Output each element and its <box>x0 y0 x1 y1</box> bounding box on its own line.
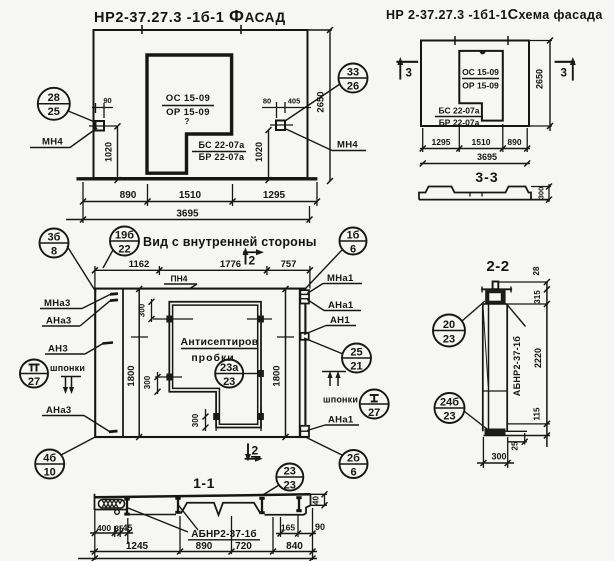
svg-text:2б: 2б <box>347 453 360 465</box>
svg-text:23: 23 <box>284 466 296 478</box>
svg-text:1020: 1020 <box>254 142 264 162</box>
svg-text:25: 25 <box>511 441 520 450</box>
svg-text:АНа3: АНа3 <box>46 316 72 327</box>
svg-text:МНа1: МНа1 <box>327 273 354 284</box>
svg-text:10: 10 <box>44 467 56 479</box>
svg-text:ОС 15-09: ОС 15-09 <box>462 67 499 77</box>
svg-text:840: 840 <box>286 541 303 552</box>
svg-text:6: 6 <box>350 467 356 479</box>
svg-text:БС 22-07а: БС 22-07а <box>439 106 480 116</box>
svg-text:1245: 1245 <box>126 541 149 552</box>
svg-text:1162: 1162 <box>129 259 150 270</box>
svg-text:28: 28 <box>532 266 541 275</box>
svg-text:23: 23 <box>443 334 455 346</box>
svg-text:890: 890 <box>196 541 213 552</box>
svg-text:300: 300 <box>191 413 200 427</box>
svg-text:21: 21 <box>350 361 362 373</box>
svg-text:19б: 19б <box>115 230 134 242</box>
svg-text:757: 757 <box>281 259 297 270</box>
svg-text:28: 28 <box>48 92 60 104</box>
svg-text:300: 300 <box>143 375 152 389</box>
svg-text:20: 20 <box>443 319 455 331</box>
svg-text:890: 890 <box>120 190 137 201</box>
svg-text:1776: 1776 <box>220 259 241 270</box>
svg-text:АН3: АН3 <box>48 344 68 355</box>
svg-text:25: 25 <box>48 106 60 118</box>
svg-text:6: 6 <box>350 244 356 256</box>
svg-text:3695: 3695 <box>176 209 199 220</box>
svg-text:АБНР2-37-1б: АБНР2-37-1б <box>512 336 522 396</box>
svg-text:шпонки: шпонки <box>50 363 85 373</box>
svg-text:45: 45 <box>123 523 133 533</box>
svg-text:2220: 2220 <box>533 348 543 368</box>
svg-text:МН4: МН4 <box>337 140 358 151</box>
svg-text:АН1: АН1 <box>330 315 350 326</box>
svg-text:3695: 3695 <box>477 152 497 162</box>
svg-text:22: 22 <box>118 244 130 256</box>
svg-text:3б: 3б <box>48 232 61 244</box>
svg-text:115: 115 <box>533 407 542 420</box>
svg-text:300: 300 <box>491 452 506 462</box>
svg-text:Антисептиров: Антисептиров <box>180 336 258 348</box>
svg-text:33: 33 <box>347 67 359 79</box>
svg-text:23а: 23а <box>220 362 239 374</box>
svg-text:300: 300 <box>537 187 546 200</box>
svg-text:90: 90 <box>315 522 325 532</box>
svg-text:1295: 1295 <box>263 190 286 201</box>
svg-text:МНа3: МНа3 <box>44 298 71 309</box>
svg-text:23: 23 <box>284 480 296 492</box>
svg-text:?: ? <box>185 117 190 126</box>
svg-text:шпонки: шпонки <box>323 395 358 405</box>
svg-text:165: 165 <box>281 523 295 533</box>
svg-text:27: 27 <box>28 376 40 388</box>
svg-text:890: 890 <box>507 137 521 147</box>
svg-text:400: 400 <box>97 523 111 533</box>
svg-text:2-2: 2-2 <box>486 258 509 275</box>
svg-text:720: 720 <box>235 541 252 552</box>
svg-text:АНа1: АНа1 <box>328 300 354 311</box>
svg-text:1б: 1б <box>347 230 360 242</box>
svg-text:Вид с внутренней стороны: Вид с внутренней стороны <box>143 235 317 249</box>
svg-text:1800: 1800 <box>272 365 283 386</box>
svg-text:24б: 24б <box>440 397 459 409</box>
svg-text:НР2-37.27.3 -1б-1 ФАСАД: НР2-37.27.3 -1б-1 ФАСАД <box>94 6 286 26</box>
svg-text:1510: 1510 <box>472 137 491 147</box>
svg-text:2650: 2650 <box>535 69 545 89</box>
svg-text:405: 405 <box>288 97 301 106</box>
svg-text:ПН4: ПН4 <box>171 274 188 284</box>
svg-text:3: 3 <box>406 68 412 80</box>
svg-text:3: 3 <box>561 68 567 80</box>
svg-text:2: 2 <box>249 254 256 268</box>
svg-text:25: 25 <box>350 347 362 359</box>
svg-text:1295: 1295 <box>432 137 451 147</box>
svg-text:40: 40 <box>312 496 321 505</box>
svg-text:23: 23 <box>223 376 235 388</box>
svg-text:4б: 4б <box>43 453 56 465</box>
svg-text:3-3: 3-3 <box>475 169 498 185</box>
svg-text:БР 22-07а: БР 22-07а <box>199 152 245 162</box>
svg-text:26: 26 <box>347 81 359 93</box>
svg-text:1510: 1510 <box>179 190 202 201</box>
svg-text:АБНР2-37-1б: АБНР2-37-1б <box>191 528 257 540</box>
svg-text:НР 2-37.27.3 -1б1-1Схема фасад: НР 2-37.27.3 -1б1-1Схема фасада <box>386 7 603 23</box>
svg-text:АНа1: АНа1 <box>328 415 354 426</box>
svg-text:1-1: 1-1 <box>193 475 215 491</box>
svg-text:ОС 15-09: ОС 15-09 <box>166 93 210 104</box>
svg-text:ОР 15-09: ОР 15-09 <box>462 81 499 91</box>
svg-text:2: 2 <box>252 444 259 458</box>
svg-text:АНа3: АНа3 <box>46 405 72 416</box>
svg-text:1020: 1020 <box>103 142 113 162</box>
svg-text:БС 22-07а: БС 22-07а <box>198 140 245 150</box>
svg-text:23: 23 <box>443 411 455 423</box>
svg-text:8: 8 <box>51 246 57 258</box>
svg-text:1800: 1800 <box>126 365 137 386</box>
svg-text:315: 315 <box>533 290 542 304</box>
svg-text:27: 27 <box>368 407 380 419</box>
svg-text:МН4: МН4 <box>42 137 63 148</box>
svg-text:80: 80 <box>263 97 271 106</box>
